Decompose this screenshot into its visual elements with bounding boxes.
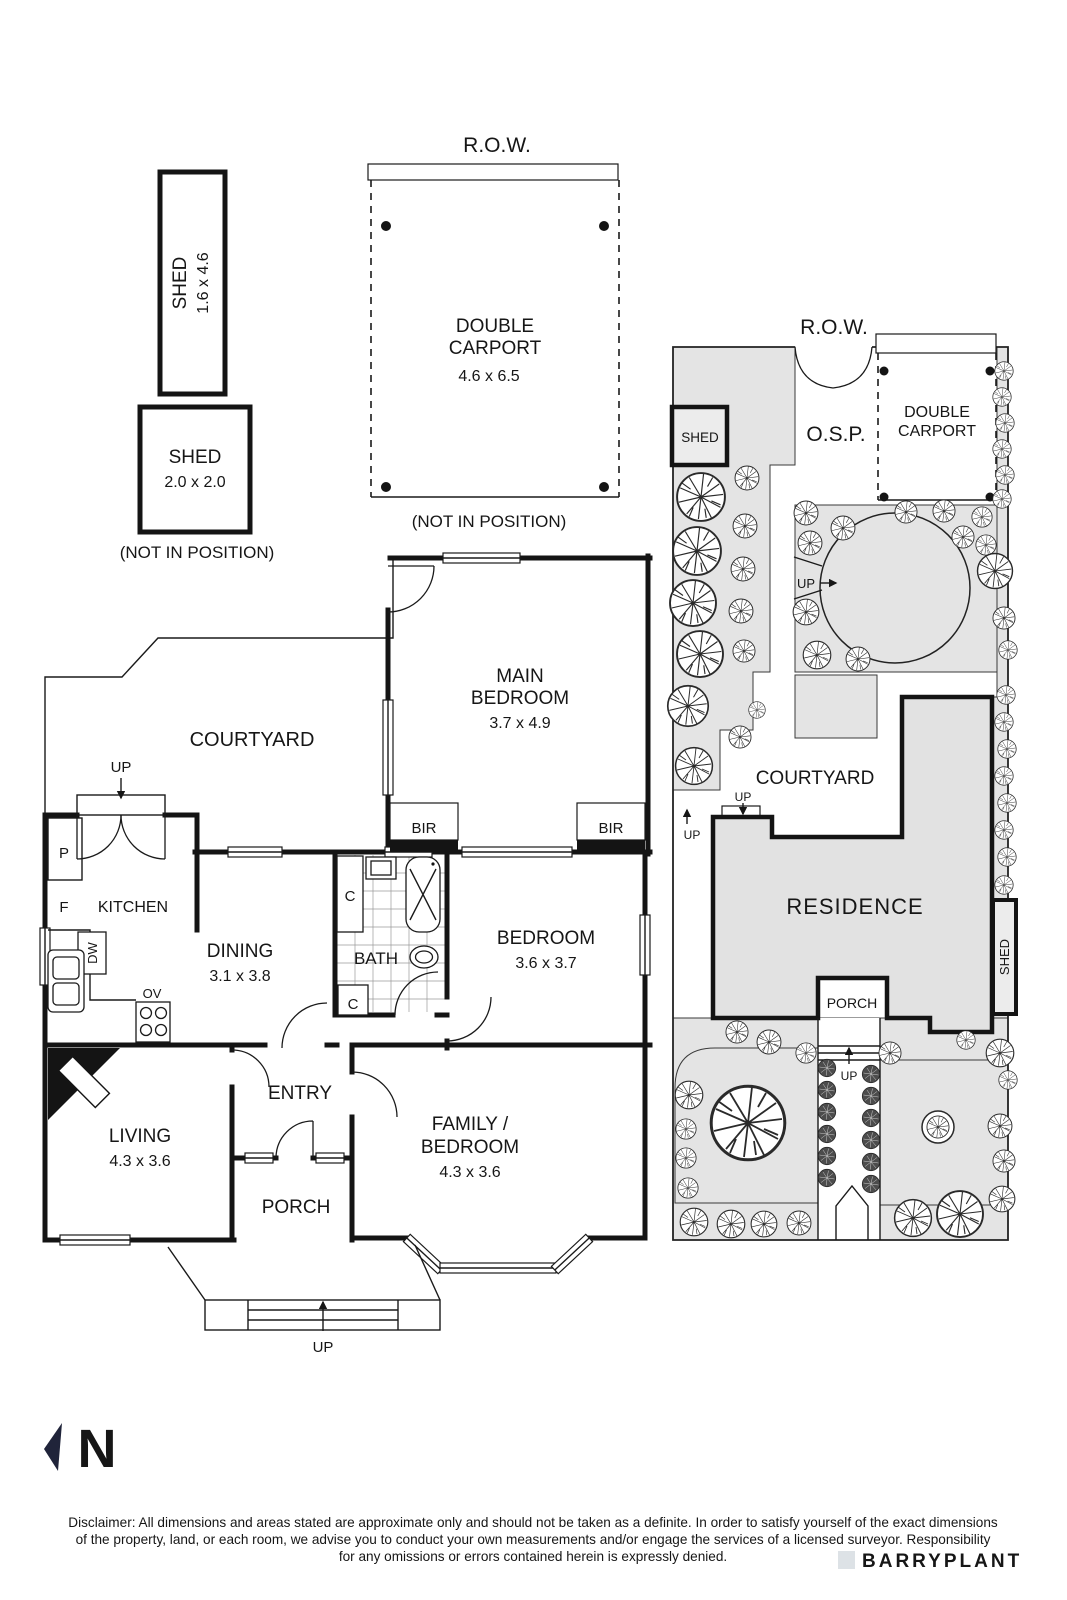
tree-icon bbox=[757, 1030, 781, 1054]
tree-icon bbox=[680, 1208, 708, 1236]
shed-tall-dims: 1.6 x 4.6 bbox=[195, 252, 212, 313]
tree-icon bbox=[749, 702, 766, 719]
tree-icon bbox=[933, 500, 955, 522]
tree-icon bbox=[729, 599, 753, 623]
site-carport: DOUBLE CARPORT bbox=[876, 334, 996, 502]
room-dims-bedroom: 3.6 x 3.7 bbox=[515, 955, 576, 972]
tree-icon bbox=[831, 516, 855, 540]
ground-court-block bbox=[795, 675, 877, 738]
tree-icon bbox=[846, 647, 870, 671]
feature-tree bbox=[922, 1111, 954, 1143]
tree-icon bbox=[998, 794, 1016, 812]
tree-icon bbox=[731, 557, 755, 581]
carport-post bbox=[381, 482, 391, 492]
tree-icon bbox=[879, 1042, 901, 1064]
site-shed-side-label: SHED bbox=[997, 939, 1012, 975]
sliding-door bbox=[462, 847, 572, 857]
floorplan-page: SHED 1.6 x 4.6 SHED 2.0 x 2.0 (NOT IN PO… bbox=[0, 0, 1067, 1600]
tree-icon bbox=[751, 1211, 777, 1237]
hedge-icon bbox=[862, 1065, 880, 1083]
osp-label: O.S.P. bbox=[806, 423, 865, 446]
tree-icon bbox=[733, 514, 757, 538]
tree-icon bbox=[996, 414, 1014, 432]
disclaimer-line-2: of the property, land, or each room, we … bbox=[76, 1532, 991, 1547]
tree-icon bbox=[793, 599, 819, 625]
row-label-left: R.O.W. bbox=[463, 134, 531, 157]
tree-icon bbox=[895, 501, 917, 523]
pantry-label: P bbox=[59, 845, 69, 862]
disclaimer-line-3: for any omissions or errors contained he… bbox=[339, 1549, 727, 1564]
site-carport-l1: DOUBLE bbox=[904, 404, 970, 421]
closet-lower-label: C bbox=[348, 996, 359, 1013]
room-label-entry: ENTRY bbox=[268, 1083, 332, 1104]
room-label-porch: PORCH bbox=[262, 1197, 331, 1218]
tree-icon bbox=[794, 501, 818, 525]
room-label-main-bedroom-2: BEDROOM bbox=[471, 688, 569, 709]
tree-icon bbox=[803, 641, 831, 669]
disclaimer-line-1: Disclaimer: All dimensions and areas sta… bbox=[68, 1515, 998, 1530]
north-indicator: N bbox=[44, 1419, 117, 1479]
hedge-icon bbox=[862, 1087, 880, 1105]
north-letter: N bbox=[78, 1419, 117, 1479]
up-rear-label: UP bbox=[111, 759, 132, 776]
cooktop bbox=[136, 1002, 170, 1042]
tree-icon bbox=[972, 507, 992, 527]
window bbox=[383, 700, 393, 795]
fridge-label: F bbox=[59, 899, 68, 916]
carport-left-dims: 4.6 x 6.5 bbox=[458, 368, 519, 385]
floor-plan: COURTYARD bbox=[40, 553, 650, 1356]
carport-left-l1: DOUBLE bbox=[456, 316, 534, 337]
tree-icon bbox=[677, 473, 725, 521]
tree-icon bbox=[999, 1071, 1017, 1089]
tree-icon bbox=[996, 466, 1014, 484]
tree-icon bbox=[798, 531, 822, 555]
room-dims-main-bedroom: 3.7 x 4.9 bbox=[489, 715, 550, 732]
carport-post bbox=[599, 482, 609, 492]
tree-icon bbox=[995, 362, 1013, 380]
room-label-dining: DINING bbox=[207, 941, 274, 962]
room-label-family-2: BEDROOM bbox=[421, 1137, 519, 1158]
tree-icon bbox=[787, 1211, 811, 1235]
hedge-icon bbox=[862, 1131, 880, 1149]
bath-fixtures: C BATH C bbox=[337, 856, 440, 1015]
shed-tall-label: SHED bbox=[170, 257, 191, 310]
site-shed-rear-label: SHED bbox=[681, 430, 719, 445]
tree-icon bbox=[673, 527, 721, 575]
bay-window-right bbox=[551, 1234, 592, 1273]
bay-window-center bbox=[440, 1263, 556, 1273]
tree-icon bbox=[986, 1039, 1014, 1067]
tree-icon bbox=[796, 1043, 816, 1063]
window bbox=[316, 1153, 344, 1163]
hedge-icon bbox=[862, 1175, 880, 1193]
tree-icon bbox=[726, 1021, 748, 1043]
hedge-icon bbox=[862, 1109, 880, 1127]
room-dims-dining: 3.1 x 3.8 bbox=[209, 968, 270, 985]
tree-icon bbox=[978, 554, 1013, 589]
site-porch-label: PORCH bbox=[827, 995, 878, 1011]
room-label-living: LIVING bbox=[109, 1126, 171, 1147]
tree-icon bbox=[993, 607, 1015, 629]
room-label-kitchen: KITCHEN bbox=[98, 899, 168, 916]
dishwasher-label: DW bbox=[85, 941, 100, 963]
tree-icon bbox=[998, 848, 1016, 866]
tree-icon bbox=[997, 686, 1015, 704]
tree-icon bbox=[993, 1150, 1015, 1172]
tree-icon bbox=[995, 713, 1013, 731]
footer: BARRYPLANT Disclaimer: All dimensions an… bbox=[68, 1515, 1022, 1572]
tree-icon bbox=[670, 580, 716, 626]
room-dims-family: 4.3 x 3.6 bbox=[439, 1164, 500, 1181]
sheds-note: (NOT IN POSITION) bbox=[120, 543, 275, 562]
bir-right-label: BIR bbox=[598, 820, 623, 837]
courtyard-fence bbox=[45, 558, 393, 815]
window bbox=[245, 1153, 273, 1163]
tree-icon bbox=[993, 388, 1011, 406]
room-label-courtyard: COURTYARD bbox=[190, 729, 315, 751]
watermark-logo-icon bbox=[838, 1551, 855, 1569]
window bbox=[228, 847, 282, 857]
bir-left-label: BIR bbox=[411, 820, 436, 837]
up-side-label: UP bbox=[684, 828, 701, 842]
site-courtyard-label: COURTYARD bbox=[756, 768, 875, 789]
tree-icon bbox=[676, 1119, 696, 1139]
detached-structures: SHED 1.6 x 4.6 SHED 2.0 x 2.0 (NOT IN PO… bbox=[120, 134, 619, 562]
hedge-icon bbox=[818, 1169, 836, 1187]
tree-icon bbox=[999, 641, 1017, 659]
tree-icon bbox=[717, 1210, 745, 1238]
tree-icon bbox=[998, 740, 1016, 758]
tree-icon bbox=[988, 1114, 1012, 1138]
carport-note: (NOT IN POSITION) bbox=[412, 512, 567, 531]
tree-icon bbox=[676, 1148, 696, 1168]
tree-icon bbox=[675, 1081, 703, 1109]
floorplan-drawing: SHED 1.6 x 4.6 SHED 2.0 x 2.0 (NOT IN PO… bbox=[0, 0, 1067, 1600]
up-court-label: UP bbox=[735, 790, 752, 804]
tree-icon bbox=[952, 526, 974, 548]
tree-icon bbox=[677, 631, 723, 677]
room-dims-living: 4.3 x 3.6 bbox=[109, 1153, 170, 1170]
tree-icon bbox=[711, 1086, 785, 1160]
front-steps: UP bbox=[168, 1245, 440, 1356]
shed-small-dims: 2.0 x 2.0 bbox=[164, 474, 225, 491]
up-path-label: UP bbox=[841, 1069, 858, 1083]
hedge-icon bbox=[818, 1081, 836, 1099]
tree-icon bbox=[989, 1186, 1015, 1212]
up-front-label: UP bbox=[313, 1339, 334, 1356]
room-label-family-1: FAMILY / bbox=[432, 1114, 509, 1135]
hedge-icon bbox=[818, 1103, 836, 1121]
shed-small-outline bbox=[140, 407, 250, 532]
site-plan: R.O.W. SHED O.S.P. DOUBLE CARPORT UP COU… bbox=[668, 316, 1017, 1240]
closet-upper-label: C bbox=[345, 888, 356, 905]
tree-icon bbox=[668, 686, 708, 726]
hedge-icon bbox=[818, 1125, 836, 1143]
carport-post bbox=[381, 221, 391, 231]
room-label-bath: BATH bbox=[354, 949, 398, 968]
built-in-robes: BIR BIR bbox=[390, 803, 645, 852]
window bbox=[60, 1235, 130, 1245]
tree-icon bbox=[957, 1031, 975, 1049]
gate-arcs bbox=[795, 347, 872, 388]
carport-left-l2: CARPORT bbox=[449, 338, 542, 359]
tree-icon bbox=[976, 535, 996, 555]
bay-window-left bbox=[403, 1234, 444, 1273]
oven-label: OV bbox=[143, 986, 162, 1001]
tree-icon bbox=[995, 821, 1013, 839]
room-label-main-bedroom-1: MAIN bbox=[496, 666, 544, 687]
row-label-site: R.O.W. bbox=[800, 316, 868, 339]
tree-icon bbox=[937, 1191, 983, 1237]
up-circle-label: UP bbox=[797, 576, 815, 591]
residence-outline bbox=[713, 697, 992, 1032]
room-label-bedroom: BEDROOM bbox=[497, 928, 595, 949]
hedge-icon bbox=[862, 1153, 880, 1171]
hedge-icon bbox=[818, 1059, 836, 1077]
tree-icon bbox=[729, 726, 751, 748]
window bbox=[443, 553, 520, 563]
tree-icon bbox=[678, 1178, 698, 1198]
fireplace bbox=[48, 1048, 120, 1120]
kitchen-fittings: UP P F KITCHEN DW OV bbox=[48, 759, 170, 1042]
tree-icon bbox=[993, 490, 1011, 508]
tree-icon bbox=[895, 1200, 932, 1237]
tree-icon bbox=[733, 640, 755, 662]
window bbox=[640, 915, 650, 975]
shed-small-label: SHED bbox=[169, 447, 222, 468]
watermark-text: BARRYPLANT bbox=[862, 1551, 1022, 1572]
tree-icon bbox=[995, 876, 1013, 894]
carport-post bbox=[599, 221, 609, 231]
residence-label: RESIDENCE bbox=[786, 894, 923, 919]
hedge-icon bbox=[818, 1147, 836, 1165]
site-carport-l2: CARPORT bbox=[898, 423, 976, 440]
tree-icon bbox=[735, 466, 759, 490]
tree-icon bbox=[676, 748, 713, 785]
tree-icon bbox=[995, 767, 1013, 785]
tree-icon bbox=[993, 440, 1011, 458]
north-arrow-icon bbox=[44, 1423, 62, 1471]
